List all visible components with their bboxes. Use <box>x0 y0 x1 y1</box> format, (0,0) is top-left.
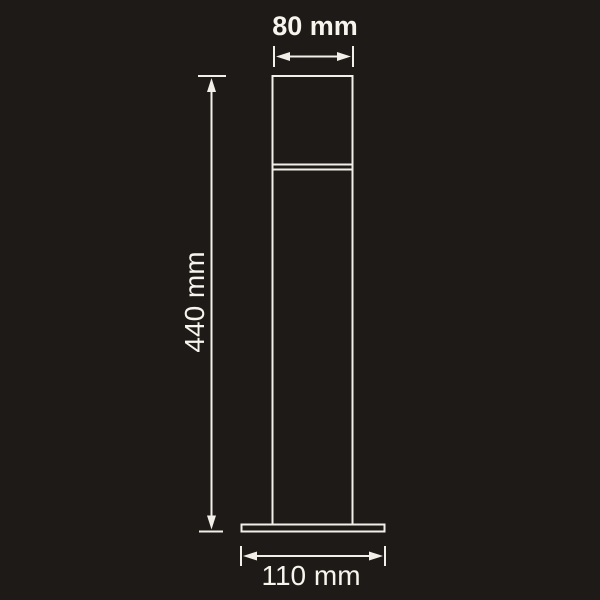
dimension-label-top-width: 80 mm <box>272 11 358 41</box>
dimension-diagram: 80 mm 440 mm 110 mm <box>0 0 600 600</box>
lamp-fixture <box>242 76 385 532</box>
dimension-top-width: 80 mm <box>272 11 358 67</box>
arrowhead-right-icon <box>337 52 351 61</box>
base-plate <box>242 525 385 532</box>
dimension-height: 440 mm <box>179 76 226 532</box>
arrowhead-right-icon <box>369 552 383 561</box>
dimension-base-width: 110 mm <box>241 546 385 591</box>
arrowhead-up-icon <box>207 78 216 92</box>
diagram-canvas: 80 mm 440 mm 110 mm <box>0 0 600 600</box>
arrowhead-left-icon <box>276 52 290 61</box>
dimension-label-height: 440 mm <box>179 251 210 352</box>
dimension-label-base-width: 110 mm <box>261 560 360 591</box>
lamp-body-outline <box>273 76 353 525</box>
arrowhead-down-icon <box>207 516 216 530</box>
arrowhead-left-icon <box>243 552 257 561</box>
